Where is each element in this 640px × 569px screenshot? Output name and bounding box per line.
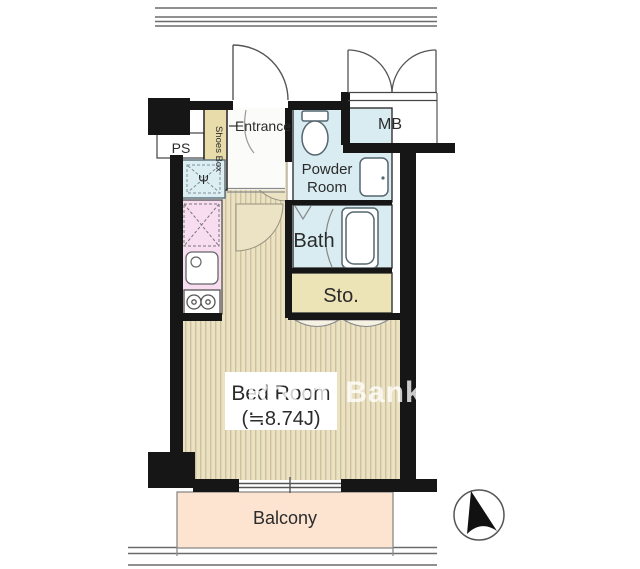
- wall-left: [170, 155, 183, 455]
- wall-right: [400, 143, 416, 488]
- wall-hall-powder-lower: [285, 200, 292, 318]
- label-mb: MB: [378, 116, 402, 133]
- wall-hall-powder-upper: [285, 108, 292, 162]
- kitchen-sink: [186, 252, 218, 284]
- label-shoes-box: Shoes Box: [213, 126, 224, 172]
- wall-bottom-left-block: [148, 452, 195, 488]
- label-bedroom-size: (≒8.74J): [241, 408, 320, 430]
- toilet-icon: [302, 111, 328, 155]
- wall-bottom-right-stub: [400, 479, 437, 492]
- wall-mb-bottom: [343, 143, 455, 153]
- wall-top-a: [185, 101, 233, 110]
- wall-powder-bath: [292, 200, 392, 205]
- wall-top-left-block: [148, 98, 190, 135]
- label-bath: Bath: [293, 230, 334, 252]
- label-entrance: Entrance: [235, 118, 291, 134]
- label-powder-room-2: Room: [307, 179, 347, 196]
- wall-bottom-left-seg: [193, 479, 239, 492]
- washbasin-icon: [360, 158, 388, 196]
- label-storage: Sto.: [323, 285, 359, 307]
- label-balcony: Balcony: [253, 508, 317, 528]
- label-powder-room-1: Powder: [302, 161, 353, 178]
- bathtub-icon: [342, 208, 378, 268]
- stove-two-burner: [184, 290, 220, 314]
- wall-storage-bottom: [288, 313, 400, 320]
- washer-symbol: Ψ: [198, 172, 209, 187]
- watermark-text: Room Bank: [247, 376, 423, 409]
- wall-top-b: [288, 101, 343, 110]
- north-arrow-compass: [454, 490, 504, 540]
- floorplan-svg: Ψ: [0, 0, 640, 569]
- label-ps: PS: [172, 140, 191, 156]
- wall-kitchen-bottom: [170, 313, 222, 321]
- wall-bath-storage: [288, 268, 392, 273]
- floorplan-image: Ψ: [0, 0, 640, 569]
- kitchen-faucet: [191, 257, 201, 267]
- wall-bottom-right-seg: [341, 479, 402, 492]
